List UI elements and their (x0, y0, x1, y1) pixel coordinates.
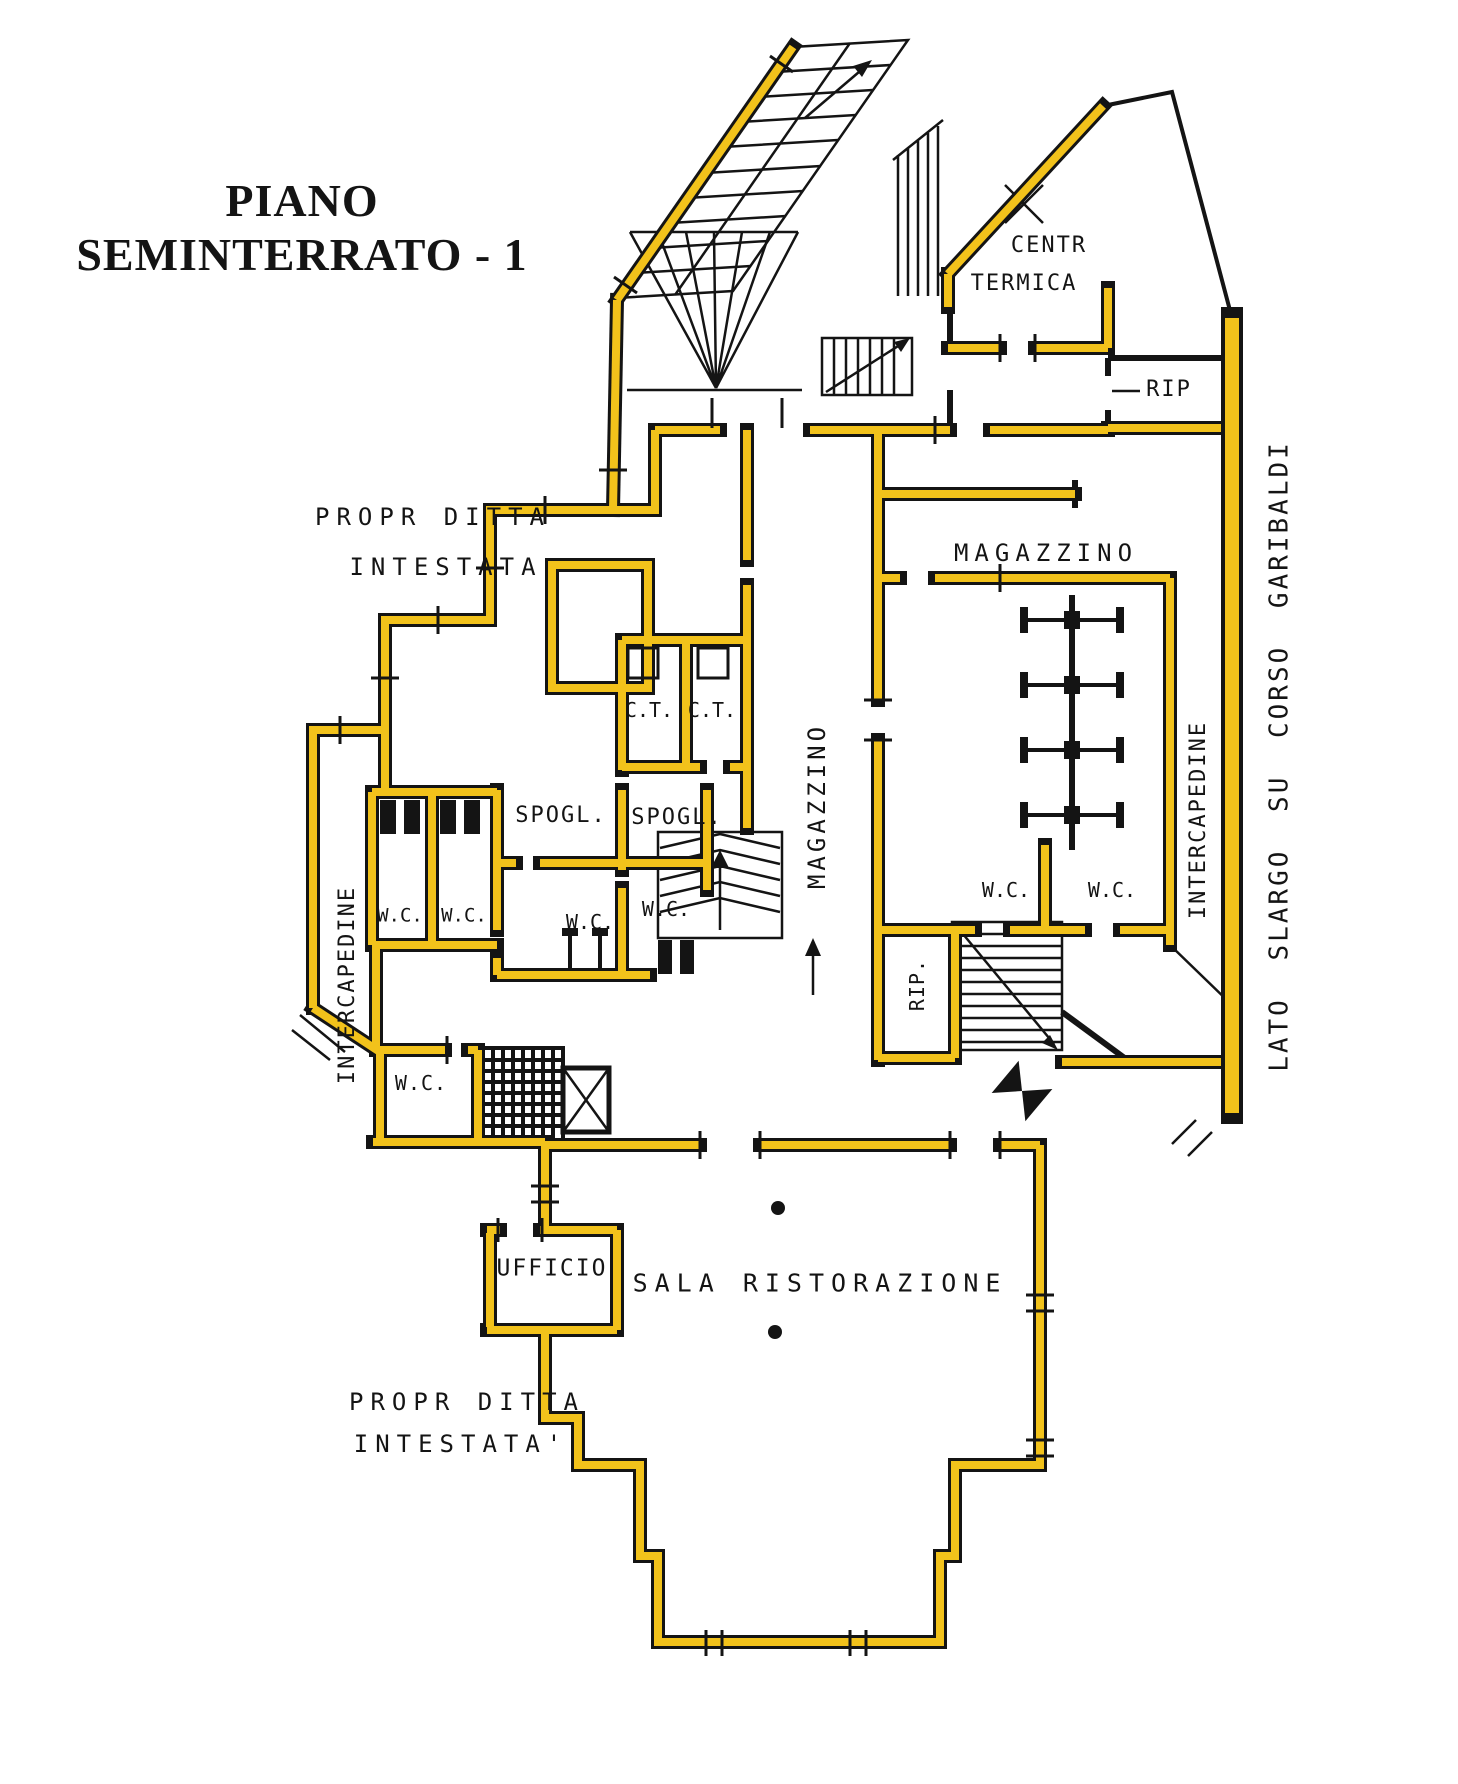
column-dot (771, 1201, 785, 1215)
room-label-ct-right: C.T. (688, 699, 736, 721)
plan-title-line2: SEMINTERRATO - 1 (76, 228, 527, 282)
room-label-sala-ristorazione: SALA RISTORAZIONE (633, 1269, 1008, 1297)
plan-title-line1: PIANO (76, 174, 527, 228)
room-label-rip-middle: RIP. (906, 959, 928, 1011)
room-label-centrale-termica-1: CENTR (1011, 234, 1087, 258)
room-label-ct-left: C.T. (625, 699, 673, 721)
room-label-spogl-left: SPOGL. (515, 804, 606, 828)
room-label-magazzino-corridor: MAGAZZINO (804, 723, 830, 889)
door-bowtie-marker (992, 1061, 1053, 1121)
column-dot (768, 1325, 782, 1339)
plan-title: PIANO SEMINTERRATO - 1 (76, 174, 527, 282)
corridor-arrowhead (805, 938, 821, 956)
annotation-propr-bottom-2: INTESTATA' (354, 1431, 569, 1457)
room-label-centrale-termica-2: TERMICA (971, 272, 1078, 296)
grid-stair (473, 1048, 563, 1140)
annotation-propr-bottom-1: PROPR DITTA (349, 1389, 585, 1415)
annotation-street-side: LATO SLARGO SU CORSO GARIBALDI (1266, 440, 1295, 1072)
room-label-ufficio: UFFICIO (497, 1256, 608, 1281)
room-label-wc-right-2: W.C. (1088, 879, 1136, 901)
room-label-rip-top: RIP (1146, 378, 1192, 402)
floor-plan-page: PIANO SEMINTERRATO - 1 CENTR TERMICA RIP… (0, 0, 1458, 1784)
annotation-propr-top-1: PROPR DITTA (315, 504, 551, 530)
room-label-wc-right-1: W.C. (982, 879, 1030, 901)
small-stair-arrowhead (894, 338, 910, 352)
room-label-wc-center-left: W.C. (566, 911, 614, 933)
room-label-wc-lower-left: W.C. (395, 1072, 447, 1094)
label-intercapedine-left: INTERCAPEDINE (336, 886, 360, 1084)
room-label-spogl-right: SPOGL. (631, 806, 722, 830)
room-label-wc-center-right: W.C. (642, 898, 690, 920)
room-label-wc-pair-2: W.C. (441, 906, 487, 927)
label-intercapedine-right: INTERCAPEDINE (1187, 721, 1211, 919)
annotation-propr-top-2: INTESTATA (349, 554, 542, 580)
room-label-wc-pair-1: W.C. (377, 906, 423, 927)
room-label-magazzino-right: MAGAZZINO (954, 540, 1138, 566)
